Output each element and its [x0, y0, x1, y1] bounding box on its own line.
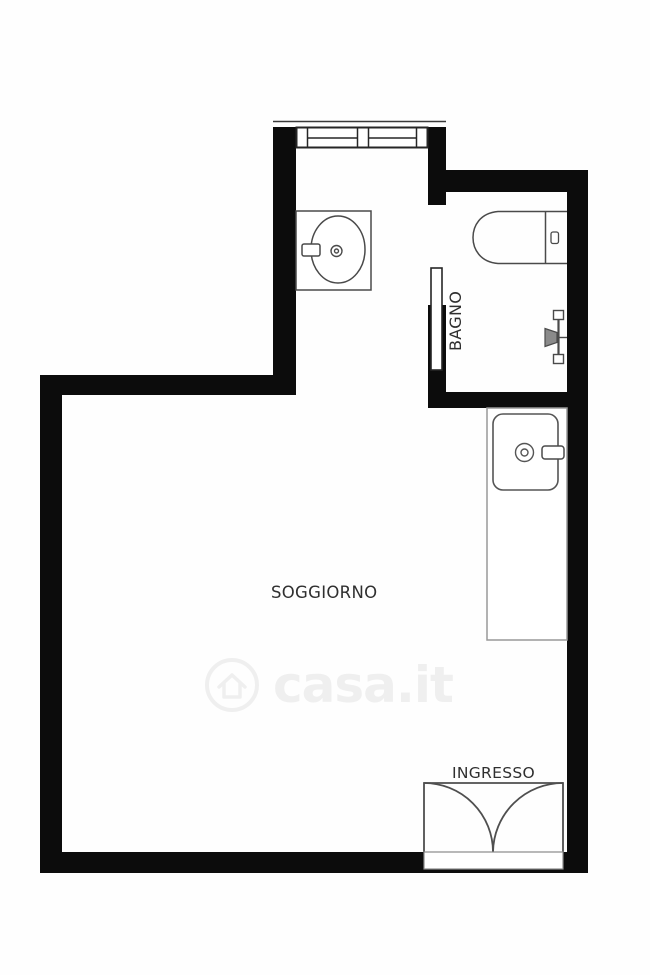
entrance-door-icon	[424, 783, 563, 869]
window-icon	[297, 128, 428, 148]
fixtures-layer	[0, 0, 650, 975]
shower-icon	[545, 311, 567, 364]
washbasin-icon	[296, 211, 371, 290]
floor-plan: casa.it	[0, 0, 650, 975]
entrance-threshold	[424, 852, 563, 869]
room-label-bagno: BAGNO	[429, 297, 483, 351]
toilet-icon	[473, 212, 567, 264]
room-label-soggiorno: SOGGIORNO	[271, 583, 377, 602]
room-label-ingresso: INGRESSO	[424, 764, 563, 782]
kitchen-counter-icon	[487, 408, 567, 640]
